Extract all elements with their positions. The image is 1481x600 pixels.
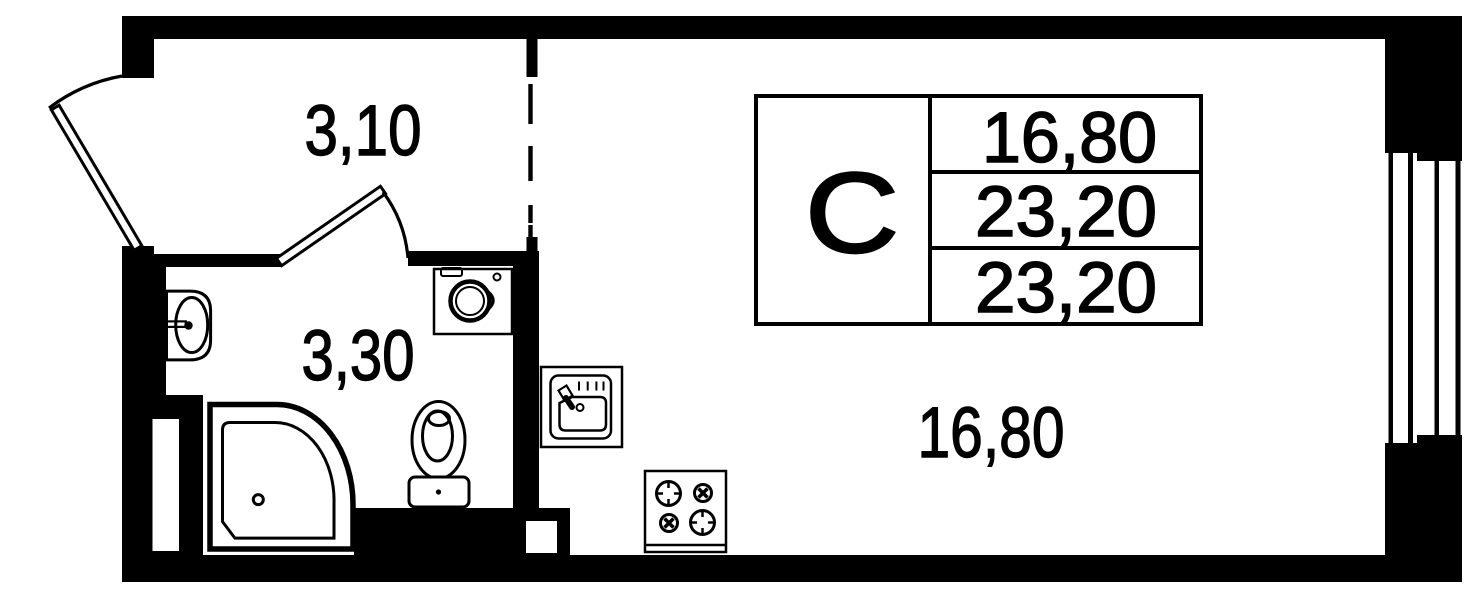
svg-text:16,80: 16,80 [918,394,1065,473]
svg-text:С: С [805,150,899,277]
svg-text:16,80: 16,80 [982,99,1157,178]
svg-text:3,10: 3,10 [305,92,422,171]
svg-text:3,30: 3,30 [302,317,415,396]
svg-text:23,20: 23,20 [975,249,1157,328]
svg-text:23,20: 23,20 [975,173,1157,252]
